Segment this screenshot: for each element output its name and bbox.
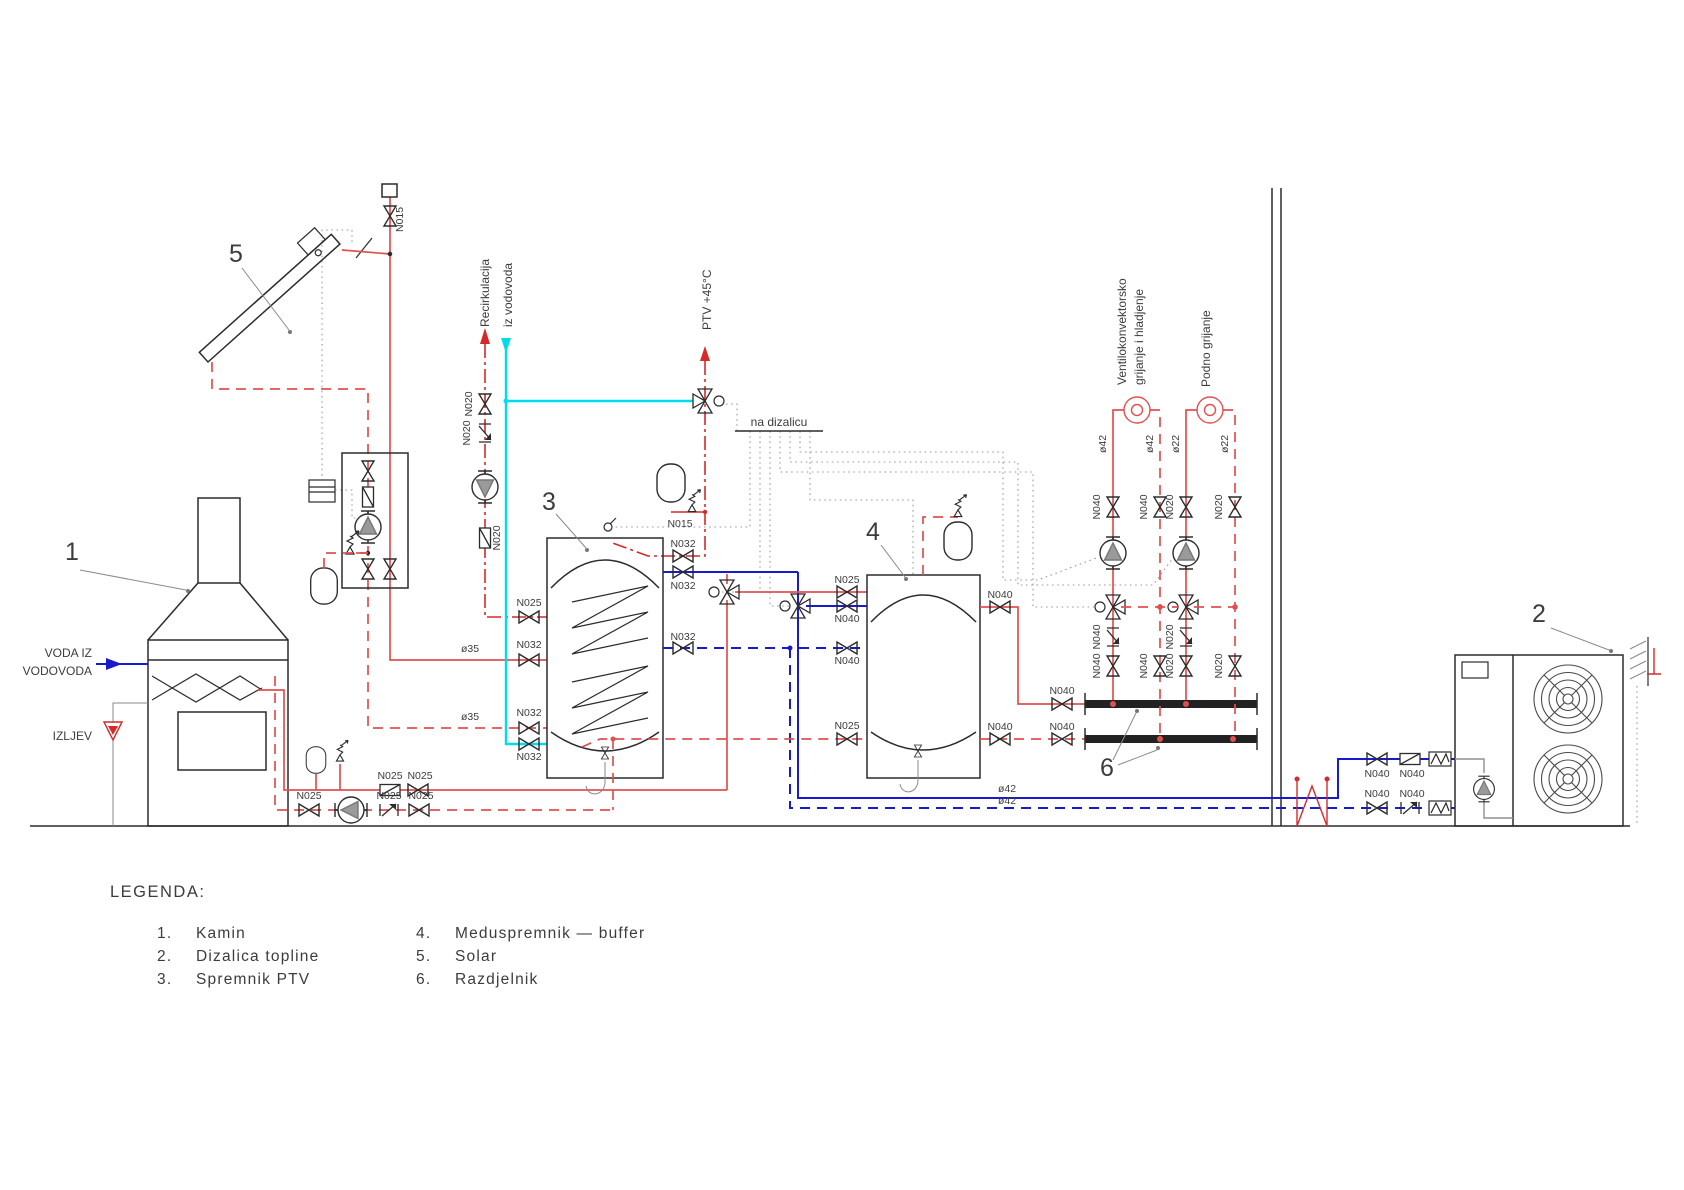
valve-size-label: N020 xyxy=(1164,653,1176,678)
valve-size-label: N032 xyxy=(516,751,541,763)
valve-size-label: N020 xyxy=(463,391,475,416)
filter-icon xyxy=(1400,754,1420,765)
pump-icon xyxy=(1100,537,1126,569)
buffer-to-manifold: N040 N040 N040 N040 xyxy=(980,589,1085,745)
junction-dots xyxy=(388,252,392,256)
fresh-water-line: iz vodovoda N032 xyxy=(501,263,693,763)
solar-line-labels: ø35 ø35 N032 N032 xyxy=(461,639,542,734)
valve-size-label: N032 xyxy=(670,538,695,550)
valve-size-label: N040 xyxy=(1091,494,1103,519)
pipe-size-label: ø42 xyxy=(1097,435,1109,453)
fan-icon xyxy=(1534,665,1602,733)
control-label: na dizalicu xyxy=(751,415,808,429)
fireplace-coil xyxy=(152,674,262,702)
cold-network: N040 N040 ø42 ø42 xyxy=(780,572,1455,808)
valve-size-label: N040 xyxy=(1138,653,1150,678)
schematic-page: N015 5 ø35 ø35 N032 N032 1 VODA IZ VODOV… xyxy=(0,0,1684,1190)
flow-label: VODA IZ xyxy=(45,646,92,660)
tank-coil xyxy=(572,586,648,654)
valve-icon xyxy=(362,559,374,579)
valve-size-label: N025 xyxy=(376,790,401,802)
control-bus: na dizalicu xyxy=(735,415,823,431)
flow-arrow-icon xyxy=(106,658,122,670)
consumer-circle-icon xyxy=(1124,397,1150,423)
mixing-valve-icon xyxy=(693,389,712,413)
building-wall xyxy=(1272,188,1281,826)
component-number: 5 xyxy=(229,240,243,268)
valve-size-label: N040 xyxy=(1364,788,1389,800)
component-number: 2 xyxy=(1532,600,1546,628)
component-number: 1 xyxy=(65,538,79,566)
dhw-safety-group: N015 xyxy=(657,464,707,530)
valve-size-label: N025 xyxy=(407,770,432,782)
solar-controller xyxy=(309,480,335,502)
pipe-size-label: ø35 xyxy=(461,711,479,723)
circuit-label: Ventilokonvektorsko xyxy=(1115,278,1129,385)
water-inlet: VODA IZ VODOVODA xyxy=(23,646,148,678)
air-vent-icon xyxy=(382,184,397,197)
circuit-label: Podno grijanje xyxy=(1199,310,1213,387)
valve-size-label: N040 xyxy=(1049,721,1074,733)
legend-item-label: Kamin xyxy=(196,925,246,942)
legend-item: 2. Dizalica topline xyxy=(157,948,319,965)
legend-item: 6. Razdjelnik xyxy=(416,971,539,988)
wall-bracket xyxy=(1630,637,1661,686)
valve-size-label: N015 xyxy=(394,207,406,232)
buffer-expansion-group xyxy=(923,495,972,575)
valve-size-label: N020 xyxy=(491,525,503,550)
valve-size-label: N025 xyxy=(296,790,321,802)
circuit-label: grijanje i hladjenje xyxy=(1132,289,1146,385)
fireplace-number: 1 xyxy=(65,538,190,593)
actuator-icon xyxy=(709,587,719,597)
valve-size-label: N025 xyxy=(834,720,859,732)
solar-expansion-vessel xyxy=(311,553,368,604)
valve-size-label: N032 xyxy=(516,707,541,719)
valve-size-label: N040 xyxy=(1364,768,1389,780)
valve-size-label: N020 xyxy=(1213,494,1225,519)
fireplace xyxy=(148,498,288,826)
flex-connector-icon xyxy=(1429,752,1451,766)
drain-valve-icon xyxy=(601,747,608,759)
pump-icon xyxy=(1173,537,1199,569)
dhw-tank xyxy=(547,518,663,794)
legend-item-label: Razdjelnik xyxy=(455,971,539,988)
safety-valve-icon xyxy=(336,740,348,761)
expansion-vessel-icon xyxy=(311,568,338,604)
solar-vent-valve: N015 xyxy=(382,184,406,256)
expansion-vessel-icon xyxy=(306,747,326,774)
heat-pump-connections: N040 N040 N040 N040 xyxy=(1364,752,1451,815)
tank-coil xyxy=(572,666,648,734)
valve-size-label: N032 xyxy=(670,580,695,592)
consumer-circle-icon xyxy=(1197,397,1223,423)
valve-size-label: N025 xyxy=(516,597,541,609)
valve-size-label: N025 xyxy=(377,770,402,782)
solar-pipes xyxy=(212,197,547,728)
legend-title: LEGENDA: xyxy=(110,883,205,901)
legend-item-label: Spremnik PTV xyxy=(196,971,310,988)
flow-arrow-icon xyxy=(700,346,710,361)
legend-item-number: 2. xyxy=(157,948,172,965)
flow-label: VODOVODA xyxy=(23,664,92,678)
valve-size-label: N040 xyxy=(1399,788,1424,800)
pump-icon xyxy=(472,471,498,503)
pipe-size-label: ø22 xyxy=(1219,435,1231,453)
floor-heating-circuit: Podno grijanje ø22 ø22 N020 N020 N020 N0… xyxy=(1164,310,1241,735)
pump-icon xyxy=(355,511,381,543)
valve-size-label: N025 xyxy=(408,790,433,802)
expansion-vessel-icon xyxy=(944,522,972,560)
fan-icon xyxy=(1534,745,1602,813)
valve-size-label: N040 xyxy=(1399,768,1424,780)
filter-icon xyxy=(363,487,374,507)
legend-item-number: 3. xyxy=(157,971,172,988)
fan-coil-circuit: Ventilokonvektorsko grijanje i hladjenje… xyxy=(1091,278,1166,735)
pipe-size-label: ø22 xyxy=(1170,435,1182,453)
valve-size-label: N040 xyxy=(987,589,1012,601)
legend-item-number: 4. xyxy=(416,925,431,942)
legend-item: 5. Solar xyxy=(416,948,497,965)
valve-size-label: N020 xyxy=(461,420,473,445)
valve-size-label: N040 xyxy=(1091,653,1103,678)
valve-size-label: N040 xyxy=(834,655,859,667)
expansion-vessel-icon xyxy=(657,464,685,502)
valve-size-label: N020 xyxy=(1213,653,1225,678)
pipe-size-label: ø42 xyxy=(998,783,1016,795)
dhw-tank-number: 3 xyxy=(542,488,589,552)
legend-item-number: 5. xyxy=(416,948,431,965)
heating-schematic-canvas: N015 5 ø35 ø35 N032 N032 1 VODA IZ VODOV… xyxy=(0,0,1684,1190)
valve-size-label: N040 xyxy=(987,721,1012,733)
valve-size-label: N040 xyxy=(1138,494,1150,519)
valve-size-label: N015 xyxy=(667,518,692,530)
component-number: 6 xyxy=(1100,754,1114,782)
flow-arrow-icon xyxy=(480,328,490,344)
valve-size-label: N032 xyxy=(670,631,695,643)
valve-size-label: N040 xyxy=(1091,624,1103,649)
flow-label: iz vodovoda xyxy=(501,263,515,327)
legend-item-number: 1. xyxy=(157,925,172,942)
fireplace-supply-pipes: N025 N025 xyxy=(258,600,727,796)
component-number: 3 xyxy=(542,488,556,516)
drain-valve-icon xyxy=(914,745,921,757)
buffer-tank-number: 4 xyxy=(866,518,908,581)
solar-number: 5 xyxy=(229,240,292,334)
flow-label: Recirkulacija xyxy=(478,259,492,327)
flex-connector-icon xyxy=(1429,801,1451,815)
legend: LEGENDA: 1. Kamin 2. Dizalica topline 3.… xyxy=(110,883,645,988)
flow-label: PTV +45°C xyxy=(700,269,714,330)
buffer-tank xyxy=(867,575,980,792)
legend-item: 4. Meduspremnik — buffer xyxy=(416,925,645,942)
fireplace-return-pipes: N025 N025 N025 xyxy=(275,676,613,823)
valve-size-label: N040 xyxy=(834,613,859,625)
actuator-icon xyxy=(1095,602,1105,612)
legend-item: 3. Spremnik PTV xyxy=(157,971,310,988)
valve-size-label: N020 xyxy=(1164,494,1176,519)
filter-icon xyxy=(480,528,491,548)
legend-item-number: 6. xyxy=(416,971,431,988)
solar-pump-station xyxy=(342,453,408,588)
valve-size-label: N032 xyxy=(516,639,541,651)
legend-item-label: Solar xyxy=(455,948,497,965)
drain-izljev: IZLJEV xyxy=(53,703,148,826)
manifold-number: 6 xyxy=(1100,709,1160,782)
sensor-icon xyxy=(604,518,616,531)
heat-pump xyxy=(1455,655,1623,826)
safety-valve-icon xyxy=(954,495,966,517)
display-panel xyxy=(1462,662,1488,678)
actuator-icon xyxy=(714,396,724,406)
pipe-size-label: ø42 xyxy=(998,795,1016,807)
component-number: 4 xyxy=(866,518,880,546)
valve-size-label: N020 xyxy=(1164,624,1176,649)
pump-icon xyxy=(1474,776,1495,802)
legend-item-label: Dizalica topline xyxy=(196,948,319,965)
legend-item-label: Meduspremnik — buffer xyxy=(455,925,645,942)
pipe-size-label: ø42 xyxy=(1144,435,1156,453)
valve-size-label: N040 xyxy=(1049,685,1074,697)
pump-icon xyxy=(335,797,367,823)
solar-collector xyxy=(189,222,372,362)
legend-item: 1. Kamin xyxy=(157,925,246,942)
pipe-size-label: ø35 xyxy=(461,643,479,655)
flow-label: IZLJEV xyxy=(53,729,92,743)
buffer-charging-group: N025 N025 xyxy=(582,574,867,810)
wall-expansion-loop xyxy=(1295,777,1330,827)
heat-pump-number: 2 xyxy=(1532,600,1613,653)
valve-icon xyxy=(409,804,429,816)
valve-size-label: N025 xyxy=(834,574,859,586)
safety-valve-icon xyxy=(688,490,700,512)
